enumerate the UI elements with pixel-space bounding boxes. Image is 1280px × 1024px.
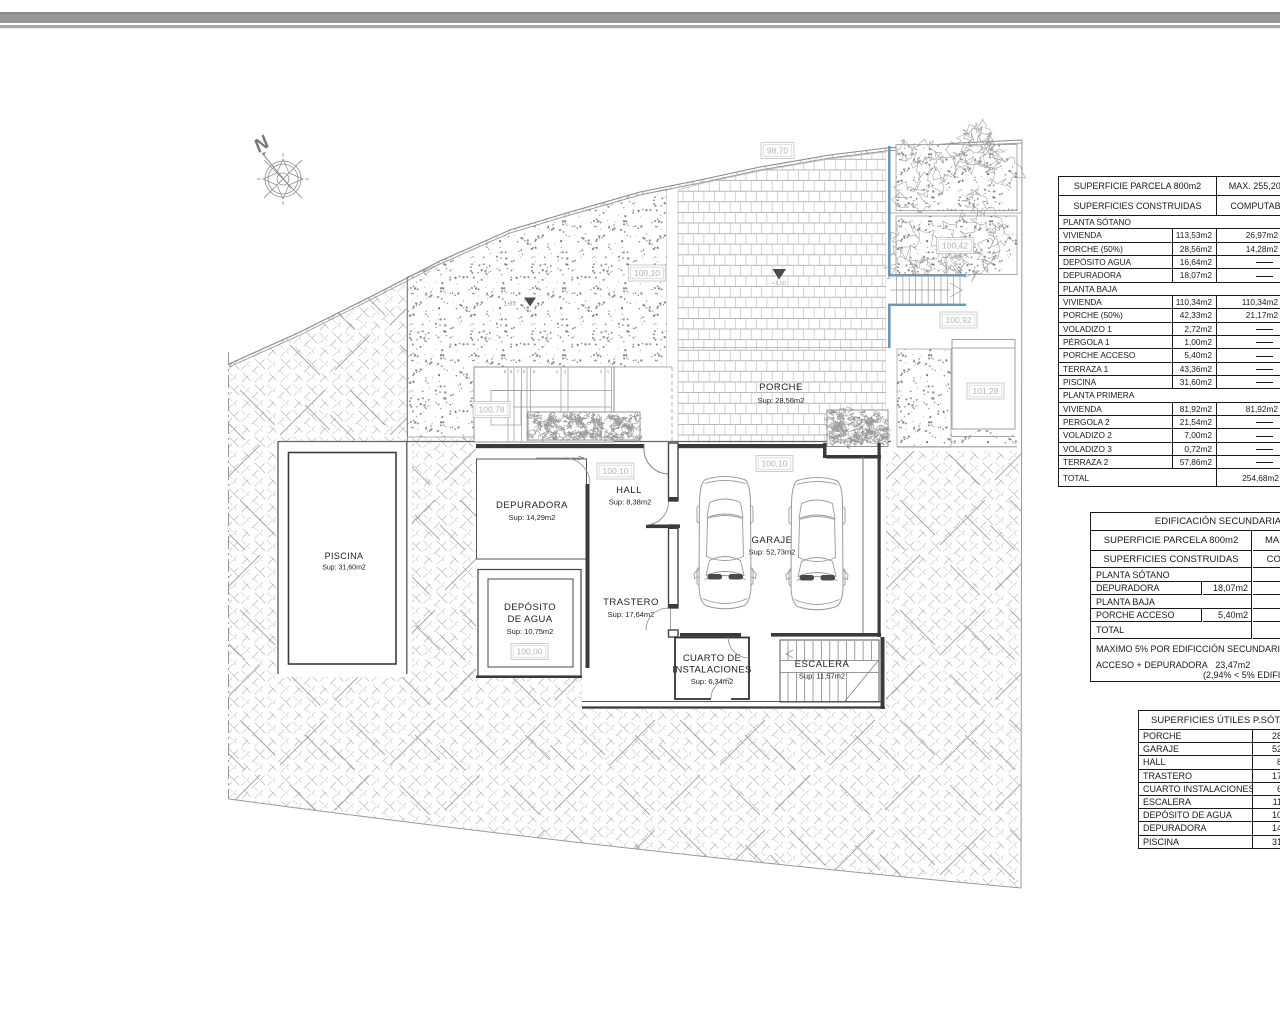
- svg-text:101,28: 101,28: [973, 386, 999, 396]
- svg-text:ESCALERA: ESCALERA: [795, 659, 850, 670]
- svg-text:Sup: 10,75m2: Sup: 10,75m2: [507, 627, 554, 636]
- svg-text:DEPÓSITO: DEPÓSITO: [504, 602, 556, 613]
- svg-text:Sup: 31,60m2: Sup: 31,60m2: [322, 565, 366, 572]
- svg-text:100,78: 100,78: [479, 405, 505, 415]
- svg-text:Sup: 11,57m2: Sup: 11,57m2: [799, 672, 845, 681]
- svg-text:CUARTO DE: CUARTO DE: [683, 653, 741, 664]
- svg-text:100,10: 100,10: [603, 466, 629, 476]
- svg-text:TRASTERO: TRASTERO: [603, 597, 659, 608]
- svg-text:PORCHE: PORCHE: [759, 382, 803, 393]
- svg-text:N: N: [250, 131, 274, 157]
- svg-text:1,35: 1,35: [503, 301, 516, 308]
- svg-text:98,70: 98,70: [767, 146, 789, 156]
- svg-text:DEPURADORA: DEPURADORA: [496, 500, 568, 511]
- svg-text:Sup: 6,34m2: Sup: 6,34m2: [691, 677, 734, 686]
- svg-text:Sup: 17,64m2: Sup: 17,64m2: [608, 610, 655, 619]
- svg-text:PISCINA: PISCINA: [325, 551, 364, 561]
- svg-text:100,10: 100,10: [762, 459, 788, 469]
- svg-text:Sup: 28,56m2: Sup: 28,56m2: [758, 396, 805, 405]
- svg-text:100,42: 100,42: [942, 241, 968, 251]
- svg-text:Sup: 52,73m2: Sup: 52,73m2: [749, 548, 796, 557]
- svg-text:100,92: 100,92: [946, 315, 972, 325]
- svg-text:HALL: HALL: [616, 485, 642, 496]
- svg-text:100,10: 100,10: [634, 268, 660, 278]
- svg-text:+1,50: +1,50: [772, 281, 786, 287]
- svg-text:GARAJE: GARAJE: [751, 535, 792, 546]
- svg-text:Sup: 14,29m2: Sup: 14,29m2: [509, 513, 556, 522]
- svg-text:Sup: 8,38m2: Sup: 8,38m2: [609, 498, 652, 507]
- svg-text:100,00: 100,00: [517, 647, 543, 657]
- svg-text:INSTALACIONES: INSTALACIONES: [672, 665, 751, 676]
- svg-text:DE AGUA: DE AGUA: [507, 614, 552, 625]
